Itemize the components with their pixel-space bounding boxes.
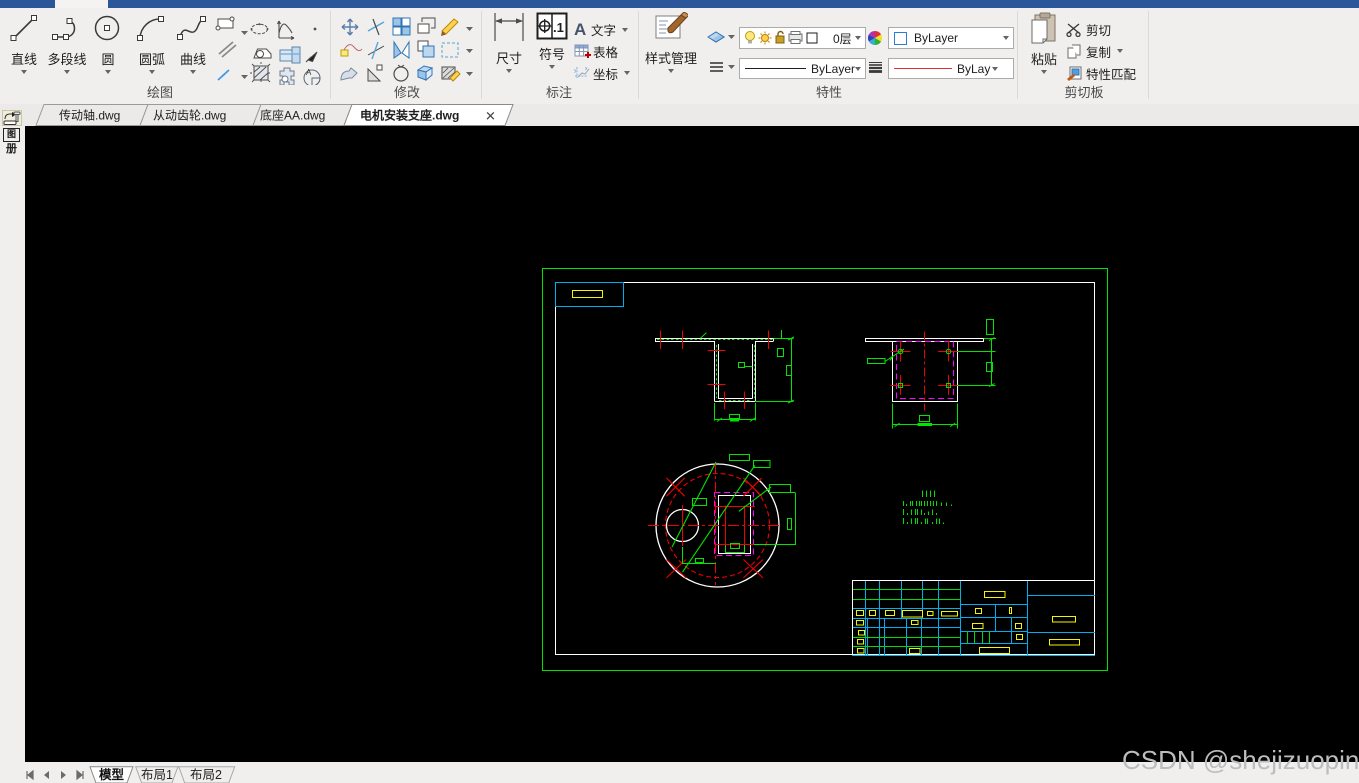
svg-text:布局2: 布局2 (190, 768, 222, 782)
svg-text:A: A (306, 68, 312, 77)
svg-text:底座AA.dwg: 底座AA.dwg (260, 108, 325, 123)
svg-text:布局1: 布局1 (141, 768, 173, 782)
svg-text:电机安装支座.dwg: 电机安装支座.dwg (360, 108, 459, 123)
svg-text:✕: ✕ (485, 109, 496, 124)
svg-text:模型: 模型 (99, 767, 125, 782)
svg-text:传动轴.dwg: 传动轴.dwg (59, 108, 120, 123)
svg-text:从动齿轮.dwg: 从动齿轮.dwg (153, 109, 226, 123)
svg-text:.1: .1 (553, 20, 564, 35)
